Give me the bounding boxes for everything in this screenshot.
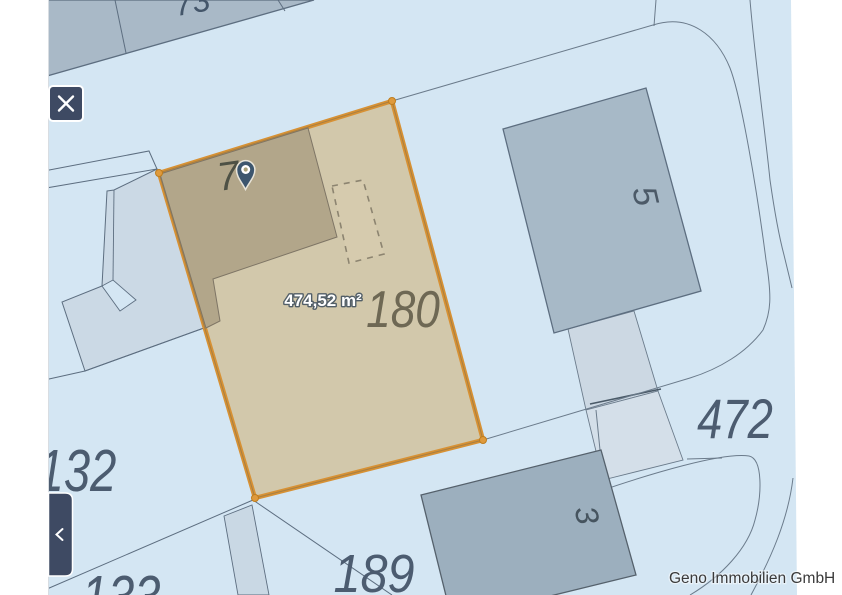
svg-text:474,52 m²: 474,52 m²	[284, 291, 362, 310]
svg-text:Geno Immobilien GmbH: Geno Immobilien GmbH	[669, 570, 835, 587]
svg-text:472: 472	[697, 387, 773, 450]
svg-text:133: 133	[82, 565, 161, 595]
svg-text:189: 189	[333, 543, 414, 595]
svg-text:180: 180	[366, 281, 440, 339]
